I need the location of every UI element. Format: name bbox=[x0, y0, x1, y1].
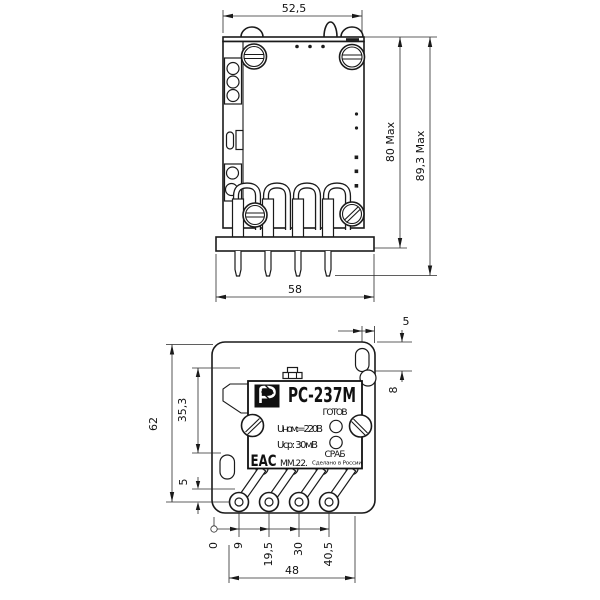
top-plate-mark bbox=[346, 38, 359, 41]
side-view: 52,5 bbox=[216, 2, 437, 302]
nameplate: РС-237М ГОТОВ Uном:=220В Uср: 30мВ СРАБ … bbox=[248, 381, 362, 470]
pin bbox=[235, 251, 241, 276]
date-code: ММ.22. bbox=[280, 459, 308, 469]
contact-blade bbox=[323, 199, 334, 237]
dim-label-8: 8 bbox=[387, 387, 400, 394]
screw-bottom-right-icon bbox=[340, 202, 364, 226]
manufacturer-logo bbox=[255, 385, 280, 408]
model-number: РС-237М bbox=[288, 383, 356, 407]
contact-blade bbox=[233, 199, 244, 237]
dim-label-35-3: 35,3 bbox=[176, 398, 189, 423]
led-operate-label: СРАБ bbox=[325, 450, 346, 460]
dim-overall-width: 52,5 bbox=[223, 2, 362, 33]
contact-blade bbox=[293, 199, 304, 237]
coord-label-30: 30 bbox=[292, 542, 305, 556]
eac-mark: ЕАС bbox=[251, 451, 277, 470]
dim-pin-coordinates: 0 9 19,5 30 40,5 bbox=[207, 513, 335, 567]
relay-drawing-svg: 52,5 bbox=[0, 0, 600, 600]
coord-label-9: 9 bbox=[232, 542, 245, 549]
screw-top-left-icon bbox=[242, 44, 267, 69]
socket-base bbox=[216, 237, 374, 251]
dim-label-89-3-max: 89,3 Max bbox=[414, 130, 427, 181]
datum-mark bbox=[211, 526, 217, 532]
pin bbox=[265, 251, 271, 276]
dim-label-5-top: 5 bbox=[403, 315, 410, 328]
led-operate-indicator bbox=[330, 436, 342, 448]
pin bbox=[325, 251, 331, 276]
top-dome-left bbox=[241, 27, 263, 37]
dim-label-48: 48 bbox=[285, 564, 299, 577]
rail-slot bbox=[227, 132, 234, 149]
dim-label-52-5: 52,5 bbox=[282, 2, 307, 15]
screw-plate-right-icon bbox=[350, 415, 372, 437]
made-in-text: Сделано в России bbox=[312, 461, 362, 467]
bottom-view: 5 8 bbox=[147, 315, 412, 583]
coord-label-0: 0 bbox=[207, 542, 220, 549]
technical-drawing-page: 52,5 bbox=[0, 0, 600, 600]
pickup-voltage-text: Uср: 30мВ bbox=[277, 440, 318, 451]
led-ready-label: ГОТОВ bbox=[323, 408, 348, 418]
pin bbox=[295, 251, 301, 276]
dim-label-62: 62 bbox=[147, 417, 160, 431]
mount-slot-bottom-left bbox=[220, 455, 235, 479]
nominal-voltage-text: Uном:=220В bbox=[277, 424, 323, 435]
mount-slot-top-right bbox=[356, 349, 370, 372]
screw-top-right-icon bbox=[340, 45, 365, 70]
top-dome-right bbox=[341, 27, 363, 37]
screw-plate-left-icon bbox=[242, 415, 264, 437]
top-bump-small bbox=[324, 22, 337, 37]
dim-label-5-left: 5 bbox=[177, 479, 190, 486]
dim-label-58: 58 bbox=[288, 283, 302, 296]
coord-label-40-5: 40,5 bbox=[322, 542, 335, 567]
coord-label-19-5: 19,5 bbox=[262, 542, 275, 567]
dim-label-80-max: 80 Max bbox=[384, 121, 397, 162]
screw-bottom-left-icon bbox=[243, 203, 267, 227]
led-ready-indicator bbox=[330, 420, 342, 432]
